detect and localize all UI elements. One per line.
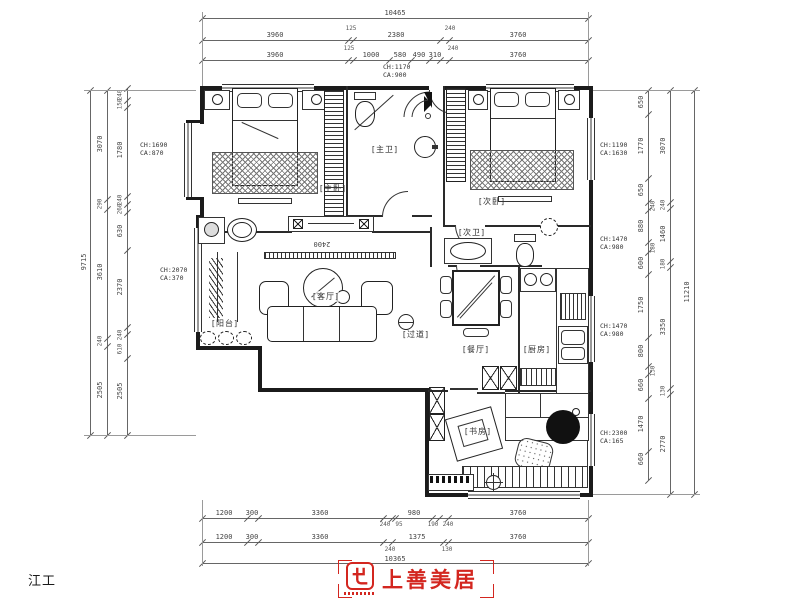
room-label-master-bath: [主卫] — [372, 144, 398, 155]
bed-bench — [238, 198, 292, 204]
dim-label: 240 — [445, 25, 456, 32]
dim-label: 600 — [637, 257, 645, 270]
dim-label: 580 — [394, 51, 407, 59]
dim-label: 240 — [385, 546, 396, 553]
dim-label: 1780 — [116, 142, 124, 159]
extension-line — [593, 90, 700, 91]
wardrobe-second — [446, 88, 466, 182]
dim-label: 3760 — [510, 31, 527, 39]
sink-bowl — [561, 330, 585, 345]
window-bay-left — [184, 123, 192, 197]
dim-label: 3960 — [267, 31, 284, 39]
dim-line-right-mid — [670, 90, 671, 494]
dim-label: 3610 — [96, 264, 104, 281]
dim-label: 660 — [637, 453, 645, 466]
washer-drum — [204, 222, 219, 237]
dim-label: 1750 — [637, 297, 645, 314]
target-cross-v — [493, 473, 494, 492]
window-note-right-low: CH:2300 CA:165 — [600, 430, 627, 445]
window-study-bottom — [468, 491, 580, 499]
dim-line-top-row3 — [202, 60, 588, 61]
plant — [200, 331, 216, 345]
pillow — [237, 93, 262, 108]
extension-line — [84, 90, 196, 91]
room-label-second-bath: [次卫] — [459, 227, 485, 238]
toilet-bowl — [516, 243, 534, 267]
dim-label: 1200 — [216, 509, 233, 517]
wall-secondbed-bottom-b — [485, 225, 591, 227]
sofa — [267, 306, 377, 342]
sofa-cushion-line — [339, 307, 340, 341]
dim-label: 1470 — [637, 416, 645, 433]
dim-label: 310 — [429, 51, 442, 59]
round-chair-dot — [572, 408, 580, 416]
plant — [218, 331, 234, 345]
plant — [236, 331, 252, 345]
room-label-kitchen: [厨房] — [524, 344, 550, 355]
vanity-basin — [450, 242, 486, 260]
toilet-tank — [354, 92, 376, 100]
wall-secondbed-bottom-a — [443, 225, 455, 227]
dining-chair — [440, 276, 452, 294]
dim-label: 240 — [117, 330, 124, 341]
study-sliding-door-b — [477, 392, 505, 394]
logo-frame-corner — [480, 584, 494, 598]
dim-label: 130 — [650, 366, 657, 377]
wall-living-left-step — [258, 346, 262, 392]
dim-label: 240 — [97, 336, 104, 347]
dim-label: 2770 — [659, 436, 667, 453]
room-label-balcony: [阳台] — [212, 318, 238, 329]
laundry-sink-inner — [232, 222, 252, 238]
sofa-cushion-line — [303, 307, 304, 341]
room-label-hallway: [过道] — [403, 329, 429, 340]
extension-line — [588, 500, 589, 566]
dim-label: 3360 — [312, 509, 329, 517]
floor-lamp-cross — [398, 322, 414, 323]
dim-line-bottom-row2 — [202, 542, 588, 543]
note-line: CA:900 — [383, 71, 406, 79]
drying-pole — [237, 252, 238, 322]
masterbath-door-arc — [382, 191, 408, 217]
logo-brand-text: 上善美居 — [382, 564, 478, 594]
note-line: CA:980 — [600, 330, 623, 338]
note-line: CA:980 — [600, 243, 623, 251]
tv-line — [308, 223, 354, 224]
wall-secondbath-bottom-a — [448, 265, 456, 267]
dim-line-left-outer — [90, 90, 91, 435]
flue-shaft — [482, 366, 499, 390]
pillow — [494, 92, 519, 107]
dim-label: 980 — [408, 509, 421, 517]
dim-label: 180 — [650, 243, 657, 254]
dim-line-bottom-row1 — [202, 518, 588, 519]
radiator-band — [462, 466, 588, 488]
dining-chair — [463, 328, 489, 337]
window-secondbed-right — [587, 118, 595, 180]
dim-label: 240 — [448, 45, 459, 52]
ceiling-lamp — [540, 218, 558, 236]
dim-label: 610 — [117, 344, 124, 355]
tv-speaker — [293, 219, 303, 229]
dim-right-overall: 11210 — [683, 281, 691, 302]
note-line: CA:165 — [600, 437, 623, 445]
toilet-tank — [514, 234, 536, 242]
duct-shaft — [429, 387, 445, 414]
wall-living-bottom — [258, 388, 429, 392]
wall-masterbed-bottom-b — [372, 231, 432, 233]
dim-label: 240 — [660, 200, 667, 211]
lamp — [564, 94, 575, 105]
flue-shaft — [500, 366, 517, 390]
dim-top-overall: 10465 — [384, 9, 405, 17]
note-line: CA:870 — [140, 149, 163, 157]
basin-tap — [432, 145, 438, 149]
room-label-second-bedroom: [次卧] — [479, 196, 505, 207]
wall-masterbed-right — [346, 86, 348, 217]
keyboard-keys — [430, 476, 472, 483]
dim-label: 290 — [97, 199, 104, 210]
window-note-top-center: CH:1170 CA:900 — [383, 64, 410, 79]
wall-secondbath-bottom-b — [480, 265, 542, 267]
dim-label: 150 — [117, 99, 124, 110]
dim-label: 1000 — [363, 51, 380, 59]
dim-label: 3760 — [510, 509, 527, 517]
logo-fineprint — [344, 592, 376, 595]
window-note-right-mid: CH:1470 CA:980 — [600, 323, 627, 338]
dim-label: 3760 — [510, 533, 527, 541]
dim-label: 2505 — [96, 382, 104, 399]
wardrobe-master — [324, 90, 344, 231]
hanging-clothes — [209, 258, 223, 318]
dim-line-right-outer — [694, 90, 695, 494]
dim-label: 260 — [117, 204, 124, 215]
dim-label: 2505 — [116, 383, 124, 400]
window-note-right-top: CH:1190 CA:1630 — [600, 142, 627, 157]
dim-label: 1200 — [216, 533, 233, 541]
brand-logo: 上善美居 — [338, 560, 494, 598]
wall-secondbed-left — [443, 86, 445, 227]
dim-line-left-mid — [107, 90, 108, 435]
dim-label: 800 — [637, 345, 645, 358]
dim-label: 130 — [660, 386, 667, 397]
study-sliding-door-a — [450, 388, 478, 390]
logo-icon — [346, 562, 374, 590]
rug-master — [212, 152, 318, 194]
lamp — [311, 94, 322, 105]
dining-chair — [500, 300, 512, 318]
wall-masterbath-bottom-b — [412, 215, 432, 217]
lamp — [473, 94, 484, 105]
dim-label: 880 — [637, 220, 645, 233]
dim-label: 3960 — [267, 51, 284, 59]
window-note-left-mid: CH:2070 CA:370 — [160, 267, 187, 282]
dim-label: 3760 — [510, 51, 527, 59]
dim-label: 180 — [660, 259, 667, 270]
room-label-master-bedroom: [主卧] — [320, 183, 346, 194]
extension-line — [593, 494, 700, 495]
dim-label: 125 — [346, 25, 357, 32]
room-label-living: [客厅] — [313, 291, 339, 302]
pillow — [525, 92, 550, 107]
dim-label: 125 — [344, 45, 355, 52]
dim-label: 3070 — [659, 138, 667, 155]
pillow — [268, 93, 293, 108]
room-label-study: [书房] — [465, 426, 491, 437]
room-label-dining: [餐厅] — [463, 344, 489, 355]
wall-secondbath-left — [430, 227, 432, 267]
dim-label: 3350 — [659, 319, 667, 336]
dim-label: 3360 — [312, 533, 329, 541]
extension-line — [84, 435, 196, 436]
dim-line-top-row2 — [202, 40, 588, 41]
dim-label: 130 — [442, 546, 453, 553]
dim-label: 190 — [428, 521, 439, 528]
lamp — [212, 94, 223, 105]
dim-label: 2370 — [116, 279, 124, 296]
dim-left-overall: 9715 — [80, 254, 88, 271]
sink-bowl — [561, 347, 585, 360]
dim-label: 300 — [246, 533, 259, 541]
blanket-line — [233, 120, 297, 121]
extension-line — [588, 12, 589, 86]
logo-monogram-icon — [349, 565, 371, 587]
note-line: CA:1630 — [600, 149, 627, 157]
dining-chair — [440, 300, 452, 318]
extension-line — [202, 12, 203, 86]
duct-shaft — [429, 414, 445, 441]
dim-label: 660 — [637, 379, 645, 392]
note-line: CA:370 — [160, 274, 183, 282]
bed-bench — [498, 196, 552, 202]
wall-left-lower — [200, 197, 204, 219]
dim-label: 2380 — [388, 31, 405, 39]
dim-label: 1770 — [637, 138, 645, 155]
cabinet-divider — [540, 393, 541, 417]
logo-frame-corner — [480, 560, 494, 574]
dim-line-top-overall — [202, 18, 588, 19]
dim-line-right-inner — [648, 90, 649, 480]
rug-second — [470, 150, 574, 190]
watermark-text: 江工 — [28, 570, 56, 589]
curtain-track — [264, 252, 396, 259]
dim-label: 3070 — [96, 136, 104, 153]
dim-line-left-inner — [127, 88, 128, 435]
floorplan-canvas: 10465 3960 125 2380 240 3760 3960 125 10… — [0, 0, 800, 600]
dim-label: 650 — [637, 96, 645, 109]
extension-line — [202, 500, 203, 566]
dim-label: 240 — [380, 521, 391, 528]
burner — [524, 273, 537, 286]
dim-label: 95 — [395, 521, 402, 528]
tv-wall-dim: 2400 — [314, 240, 331, 248]
burner — [540, 273, 553, 286]
wall-balcony-bottom — [196, 346, 262, 350]
dining-chair — [500, 276, 512, 294]
dim-label: 630 — [116, 225, 124, 238]
dim-label: 240 — [443, 521, 454, 528]
dim-label: 240 — [650, 201, 657, 212]
dim-label: 300 — [246, 509, 259, 517]
dim-label: 1460 — [659, 226, 667, 243]
dim-label: 1375 — [409, 533, 426, 541]
window-note-left-top: CH:1690 CA:870 — [140, 142, 167, 157]
kitchen-window-band — [520, 368, 556, 386]
dim-label: 490 — [413, 51, 426, 59]
blanket-line — [491, 118, 555, 119]
window-note-right-upper: CH:1470 CA:980 — [600, 236, 627, 251]
tv-speaker — [359, 219, 369, 229]
dim-label: 650 — [637, 184, 645, 197]
vent-grill — [560, 293, 586, 320]
